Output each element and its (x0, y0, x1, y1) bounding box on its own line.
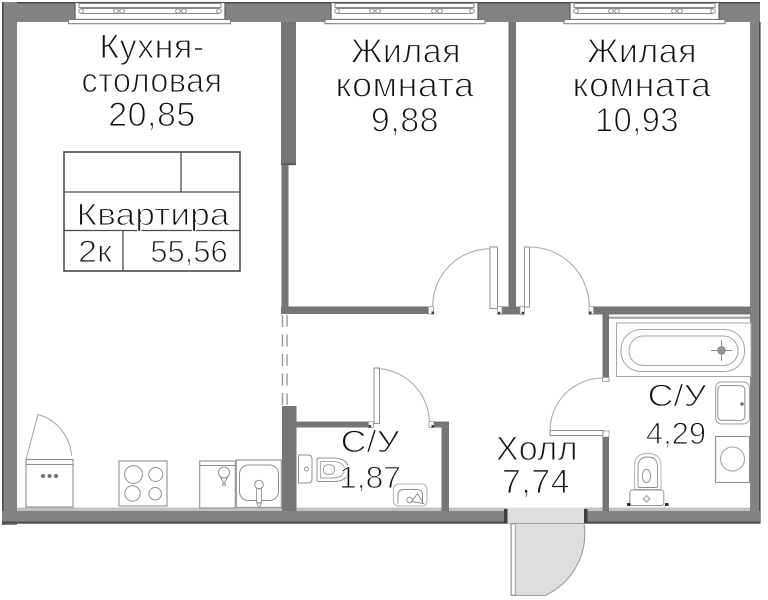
svg-text:20,85: 20,85 (108, 96, 196, 134)
svg-text:1,87: 1,87 (339, 460, 401, 495)
svg-text:4,29: 4,29 (646, 416, 706, 451)
svg-text:С/У: С/У (648, 378, 707, 413)
svg-text:Жилая: Жилая (351, 33, 461, 71)
svg-text:2к: 2к (78, 234, 112, 269)
svg-text:Жилая: Жилая (587, 33, 697, 71)
svg-text:10,93: 10,93 (595, 102, 679, 140)
svg-text:комната: комната (573, 67, 712, 105)
svg-text:55,56: 55,56 (150, 234, 228, 269)
svg-text:столовая: столовая (82, 62, 223, 100)
svg-text:7,74: 7,74 (502, 463, 570, 501)
svg-text:9,88: 9,88 (371, 102, 439, 140)
svg-text:С/У: С/У (341, 424, 400, 459)
svg-text:Кухня-: Кухня- (99, 28, 204, 66)
svg-text:Квартира: Квартира (77, 197, 231, 232)
svg-text:комната: комната (336, 67, 475, 105)
